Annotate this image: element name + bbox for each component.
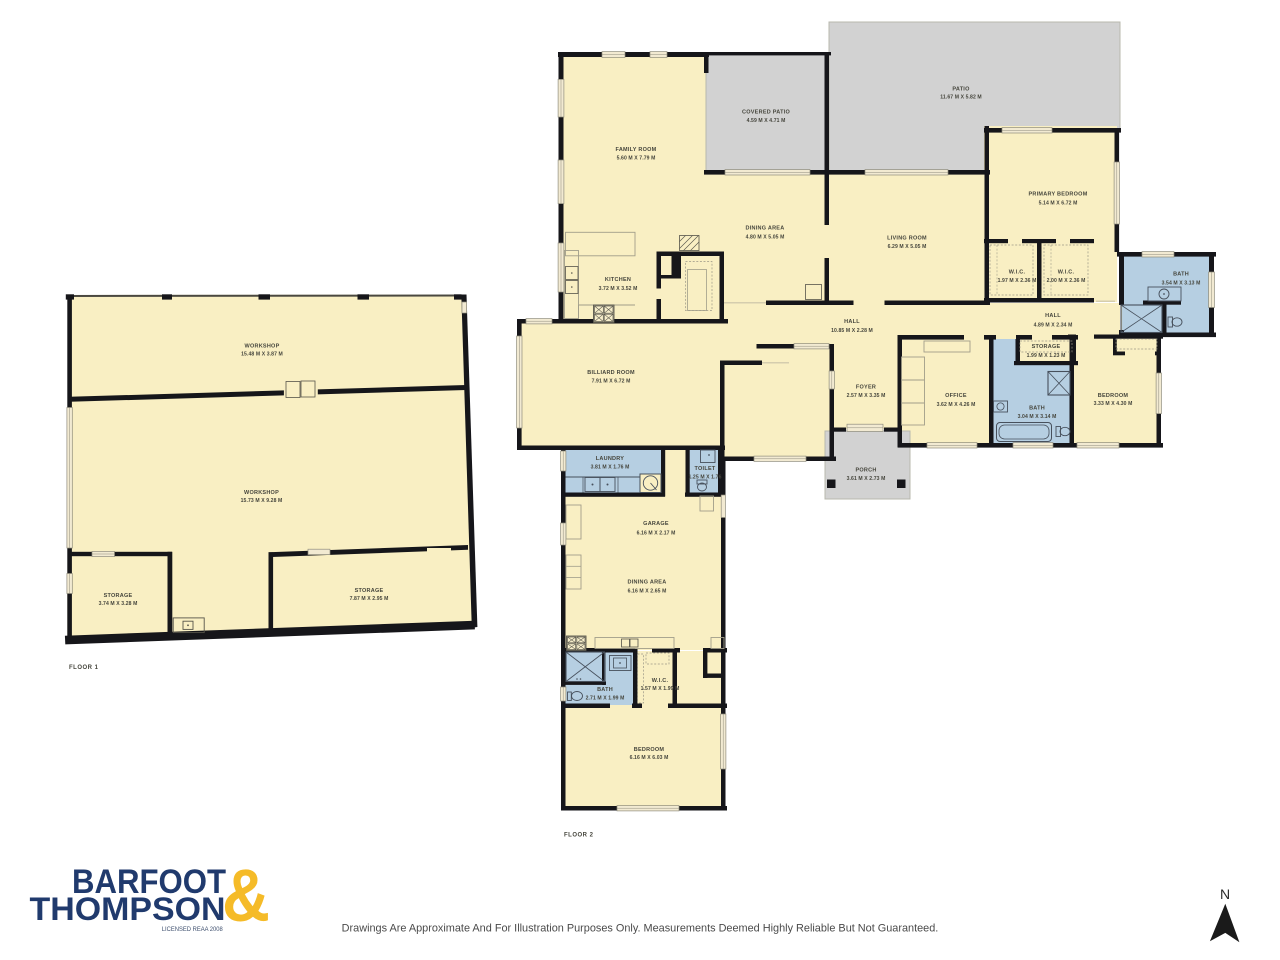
svg-text:N: N <box>1220 886 1230 902</box>
svg-text:6.16 M X 2.17 M: 6.16 M X 2.17 M <box>637 530 676 536</box>
svg-text:W.I.C.: W.I.C. <box>1058 269 1075 275</box>
svg-text:STORAGE: STORAGE <box>355 588 384 594</box>
svg-text:DINING AREA: DINING AREA <box>746 225 785 231</box>
svg-text:6.16 M X 2.65 M: 6.16 M X 2.65 M <box>628 588 667 594</box>
svg-text:3.62 M X 4.26 M: 3.62 M X 4.26 M <box>937 402 976 408</box>
svg-text:4.89 M X 2.34 M: 4.89 M X 2.34 M <box>1034 322 1073 328</box>
svg-text:COVERED PATIO: COVERED PATIO <box>742 109 790 115</box>
svg-text:BEDROOM: BEDROOM <box>634 747 665 753</box>
svg-text:PORCH: PORCH <box>855 467 876 473</box>
svg-text:WORKSHOP: WORKSHOP <box>245 343 280 349</box>
svg-text:3.74 M X 3.28 M: 3.74 M X 3.28 M <box>99 601 138 607</box>
svg-text:1.25 M X 1.76: 1.25 M X 1.76 <box>688 474 721 480</box>
svg-text:2.00 M X 2.36 M: 2.00 M X 2.36 M <box>1047 278 1086 284</box>
svg-text:6.29 M X 5.05 M: 6.29 M X 5.05 M <box>888 244 927 250</box>
svg-text:W.I.C.: W.I.C. <box>1009 269 1026 275</box>
svg-text:BEDROOM: BEDROOM <box>1098 393 1129 399</box>
svg-text:KITCHEN: KITCHEN <box>605 277 631 283</box>
svg-text:10.85 M X 2.28 M: 10.85 M X 2.28 M <box>831 328 873 334</box>
svg-text:15.48 M X 3.87 M: 15.48 M X 3.87 M <box>241 351 283 357</box>
svg-text:3.81 M X 1.76 M: 3.81 M X 1.76 M <box>591 464 630 470</box>
svg-text:3.54 M X 3.13 M: 3.54 M X 3.13 M <box>1162 280 1201 286</box>
svg-text:2.57 M X 3.35 M: 2.57 M X 3.35 M <box>847 393 886 399</box>
svg-text:OFFICE: OFFICE <box>945 393 967 399</box>
svg-text:WORKSHOP: WORKSHOP <box>244 490 279 496</box>
svg-text:7.91 M X 6.72 M: 7.91 M X 6.72 M <box>592 378 631 384</box>
svg-text:BATH: BATH <box>1173 271 1189 277</box>
svg-text:4.59 M X 4.71 M: 4.59 M X 4.71 M <box>747 118 786 124</box>
svg-text:BATH: BATH <box>597 687 613 693</box>
svg-text:3.72 M X 3.52 M: 3.72 M X 3.52 M <box>599 286 638 292</box>
svg-text:1.57 M X 1.99 M: 1.57 M X 1.99 M <box>641 686 680 692</box>
svg-text:BILLIARD ROOM: BILLIARD ROOM <box>587 370 635 376</box>
svg-text:5.14 M X 6.72 M: 5.14 M X 6.72 M <box>1039 200 1078 206</box>
svg-text:LIVING ROOM: LIVING ROOM <box>887 235 927 241</box>
svg-text:4.80 M X 5.05 M: 4.80 M X 5.05 M <box>746 234 785 240</box>
svg-text:LICENSED REAA 2008: LICENSED REAA 2008 <box>162 926 224 933</box>
svg-text:5.60 M X 7.79 M: 5.60 M X 7.79 M <box>617 155 656 161</box>
svg-text:&: & <box>222 854 270 937</box>
svg-text:STORAGE: STORAGE <box>1032 344 1061 350</box>
svg-text:Drawings Are Approximate And F: Drawings Are Approximate And For Illustr… <box>342 923 939 935</box>
svg-text:TOILET: TOILET <box>695 466 716 472</box>
svg-text:FLOOR 1: FLOOR 1 <box>69 665 99 671</box>
svg-text:6.16 M X 6.03 M: 6.16 M X 6.03 M <box>630 755 669 761</box>
svg-text:GARAGE: GARAGE <box>643 521 669 527</box>
svg-text:1.99 M X 1.23 M: 1.99 M X 1.23 M <box>1027 353 1066 359</box>
svg-text:2.71 M X 1.99 M: 2.71 M X 1.99 M <box>586 695 625 701</box>
svg-text:HALL: HALL <box>844 319 860 325</box>
svg-text:PRIMARY BEDROOM: PRIMARY BEDROOM <box>1028 191 1087 197</box>
svg-text:DINING AREA: DINING AREA <box>628 579 667 585</box>
svg-text:STORAGE: STORAGE <box>104 593 133 599</box>
svg-text:3.33 M X 4.30 M: 3.33 M X 4.30 M <box>1094 401 1133 407</box>
svg-text:15.73 M X 9.28 M: 15.73 M X 9.28 M <box>241 498 283 504</box>
svg-text:BATH: BATH <box>1029 405 1045 411</box>
svg-text:7.87 M X 2.95 M: 7.87 M X 2.95 M <box>350 596 389 602</box>
svg-text:3.04 M X 3.14 M: 3.04 M X 3.14 M <box>1018 414 1057 420</box>
svg-text:FLOOR 2: FLOOR 2 <box>564 832 594 838</box>
svg-text:HALL: HALL <box>1045 313 1061 319</box>
svg-text:3.61 M X 2.73 M: 3.61 M X 2.73 M <box>847 476 886 482</box>
svg-text:PATIO: PATIO <box>952 86 970 92</box>
svg-text:LAUNDRY: LAUNDRY <box>596 456 625 462</box>
svg-text:THOMPSON: THOMPSON <box>30 891 226 927</box>
svg-text:W.I.C.: W.I.C. <box>652 678 669 684</box>
svg-text:FAMILY ROOM: FAMILY ROOM <box>616 147 657 153</box>
svg-text:1.97 M X 2.36 M: 1.97 M X 2.36 M <box>998 278 1037 284</box>
svg-text:FOYER: FOYER <box>856 384 876 390</box>
svg-text:11.67 M X 5.82 M: 11.67 M X 5.82 M <box>940 94 982 100</box>
